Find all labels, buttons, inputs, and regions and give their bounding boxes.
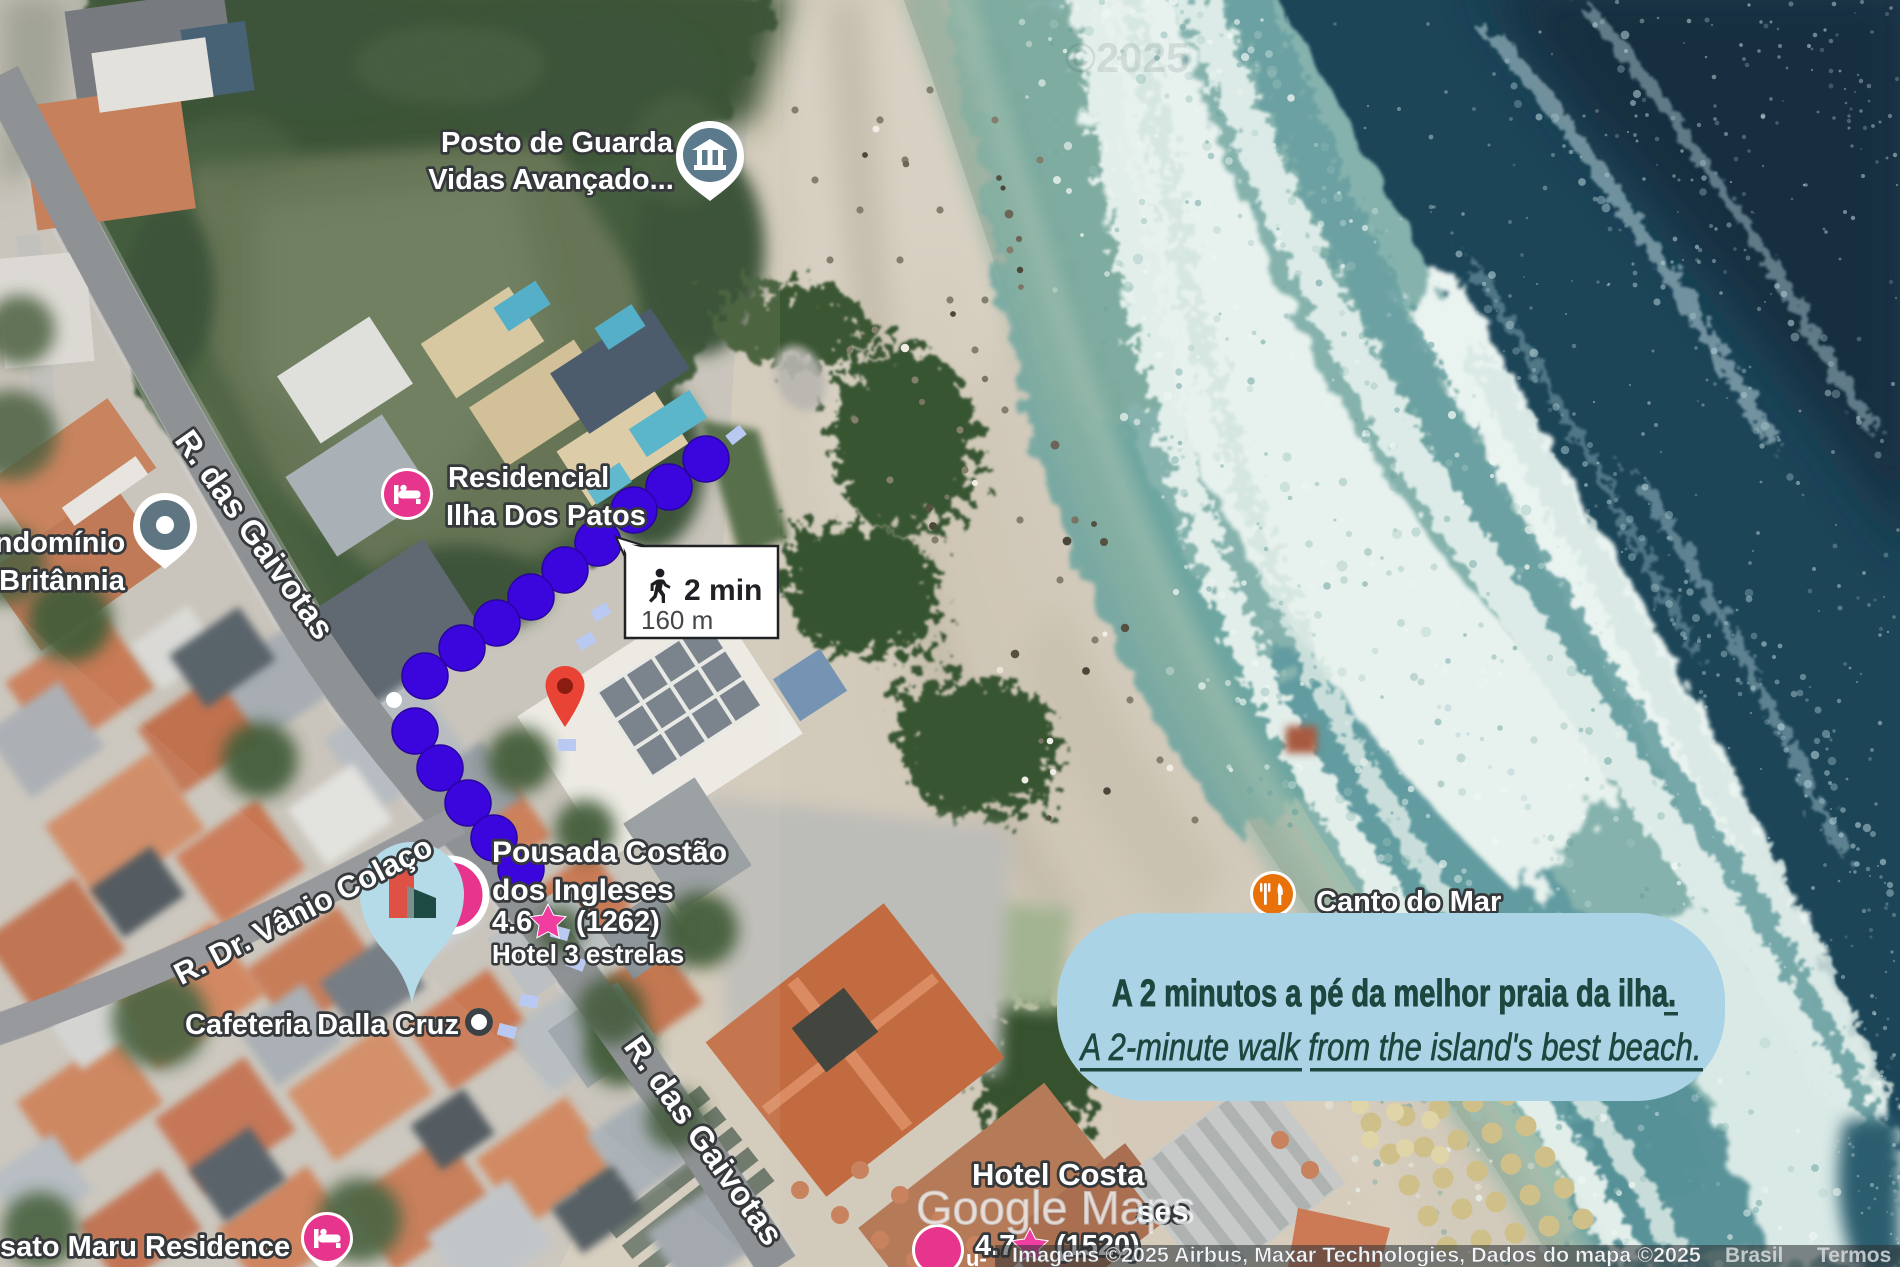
svg-text:160 m: 160 m — [641, 605, 713, 635]
svg-text:Google Maps: Google Maps — [916, 1181, 1196, 1234]
svg-text:Imagens ©2025 Airbus, Maxar Te: Imagens ©2025 Airbus, Maxar Technologies… — [1012, 1243, 1701, 1267]
svg-text:ndomínio: ndomínio — [0, 527, 125, 559]
svg-text:dos Ingleses: dos Ingleses — [492, 874, 674, 907]
svg-text:Cafeteria Dalla Cruz: Cafeteria Dalla Cruz — [185, 1009, 459, 1041]
svg-text:Termos: Termos — [1817, 1244, 1891, 1267]
svg-text:Brasil: Brasil — [1725, 1244, 1783, 1267]
svg-text:Ilha Dos Patos: Ilha Dos Patos — [446, 500, 646, 532]
svg-text:sato Maru Residence: sato Maru Residence — [0, 1231, 290, 1263]
svg-text:©2025: ©2025 — [1065, 34, 1189, 81]
svg-text:A 2-minute walk from the islan: A 2-minute walk from the island's best b… — [1079, 1027, 1702, 1069]
svg-text:Residencial: Residencial — [448, 462, 609, 494]
svg-text:Britânnia: Britânnia — [0, 565, 126, 597]
svg-text:Hotel 3 estrelas: Hotel 3 estrelas — [492, 939, 684, 969]
svg-text:Posto de Guarda: Posto de Guarda — [441, 127, 674, 159]
svg-text:2 min: 2 min — [684, 574, 762, 607]
svg-text:u-: u- — [966, 1246, 987, 1267]
svg-text:Vidas Avançado...: Vidas Avançado... — [428, 164, 674, 196]
svg-text:(1262): (1262) — [576, 906, 660, 938]
svg-text:Pousada Costão: Pousada Costão — [492, 836, 727, 869]
svg-text:4.6: 4.6 — [492, 906, 532, 938]
svg-text:A 2 minutos a pé da melhor pra: A 2 minutos a pé da melhor praia da ilha… — [1112, 972, 1676, 1015]
